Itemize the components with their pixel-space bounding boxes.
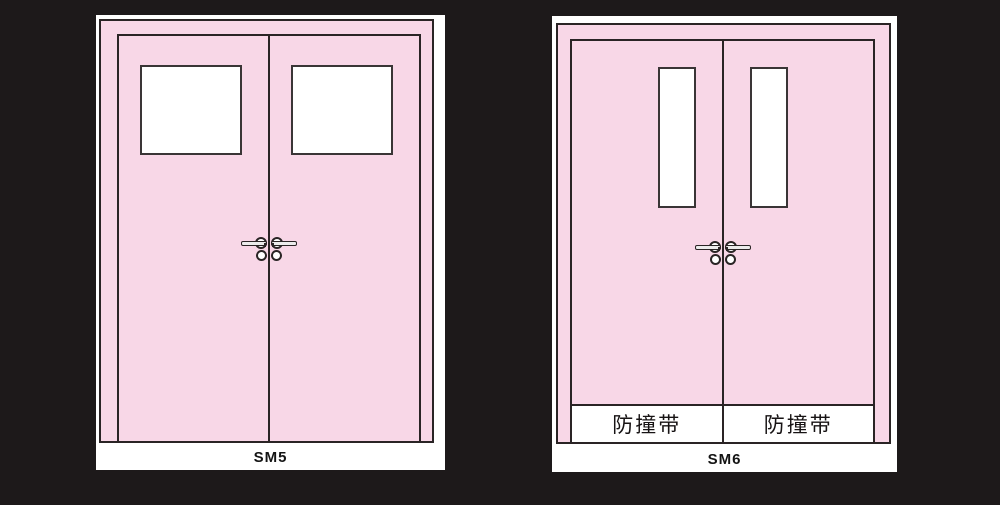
door-figure-sm6: 防撞带 防撞带 SM6 [552, 16, 897, 472]
lever-grip-icon [264, 243, 266, 247]
door-frame: 防撞带 防撞带 [556, 23, 891, 444]
door-figure-sm5: SM5 [96, 15, 445, 470]
door-leaf-right: 防撞带 [723, 39, 876, 442]
lever-handle-icon [725, 245, 751, 250]
door-window-narrow [750, 67, 788, 208]
lock-cylinder-icon [271, 250, 282, 261]
figure-label: SM6 [552, 451, 897, 468]
bumper-strip-left: 防撞带 [572, 404, 722, 442]
door-frame [99, 19, 434, 443]
door-leaf-left: 防撞带 [570, 39, 723, 442]
door-leaf-right [269, 34, 421, 441]
lock-cylinder-icon [256, 250, 267, 261]
diagram-background: { "colors": { "background": "#1d191a", "… [0, 0, 1000, 505]
lever-grip-icon [718, 247, 720, 251]
lock-cylinder-icon [710, 254, 721, 265]
bumper-strip-label: 防撞带 [764, 409, 833, 439]
door-window-narrow [658, 67, 696, 208]
door-leaf-left [117, 34, 269, 441]
figure-label: SM5 [96, 449, 445, 466]
bumper-strip-label: 防撞带 [612, 409, 681, 439]
lever-grip-icon [726, 247, 728, 251]
bumper-strip-right: 防撞带 [724, 404, 874, 442]
lever-handle-icon [271, 241, 297, 246]
lock-cylinder-icon [725, 254, 736, 265]
door-window-square [291, 65, 393, 155]
door-opening: 防撞带 防撞带 [570, 39, 875, 442]
door-opening [117, 34, 421, 441]
lever-grip-icon [272, 243, 274, 247]
door-window-square [140, 65, 242, 155]
